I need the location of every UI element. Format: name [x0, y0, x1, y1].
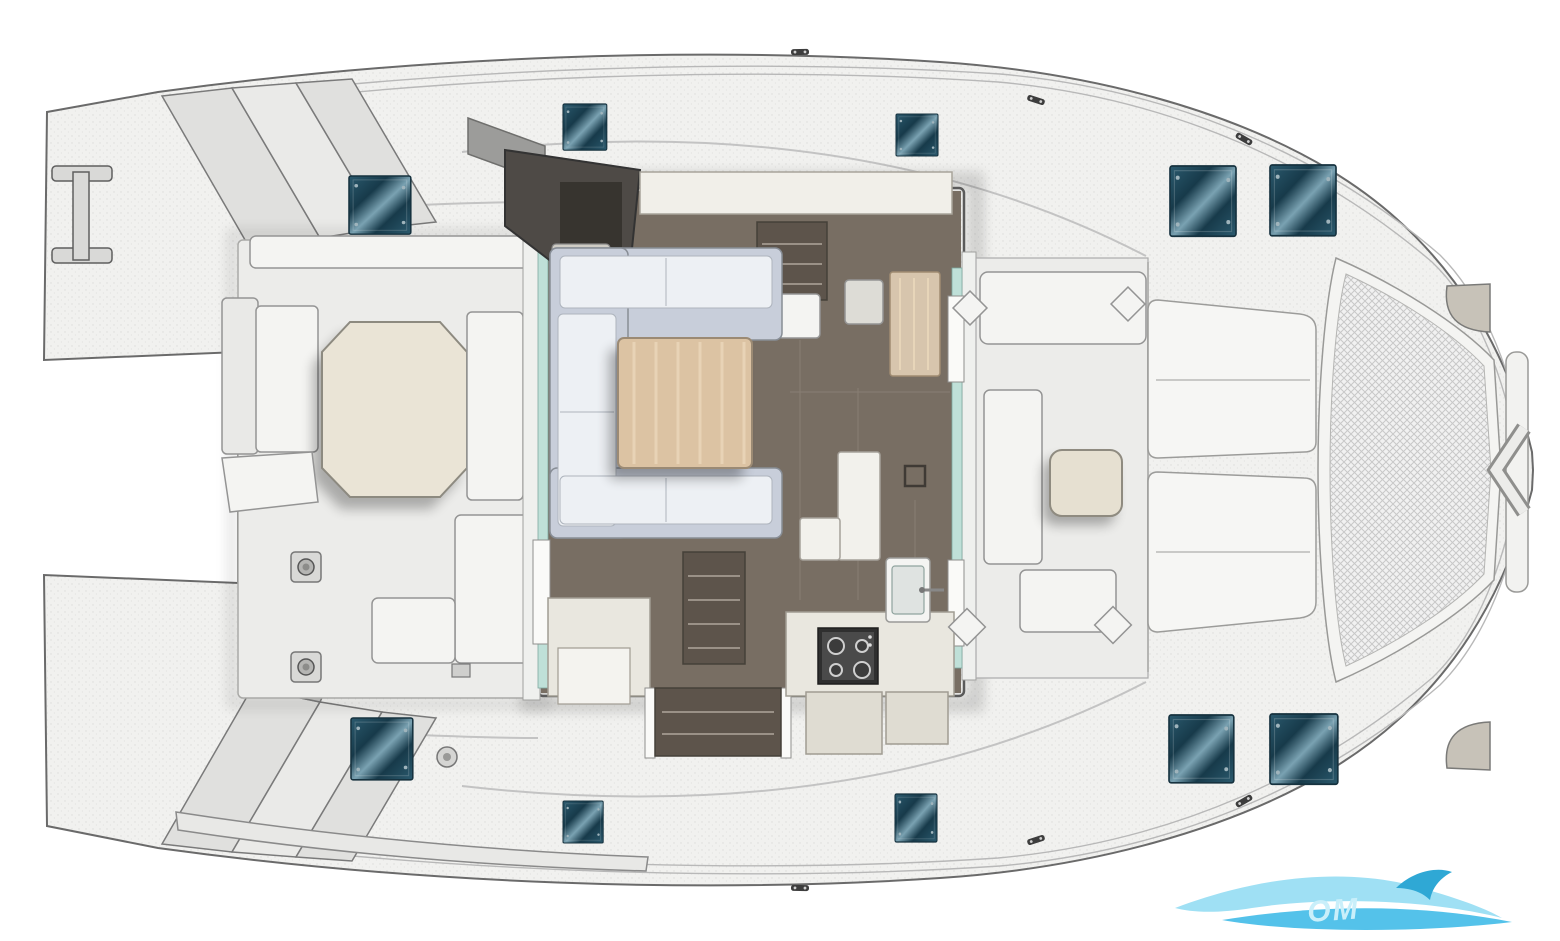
chaise-bench [467, 312, 523, 500]
deck-hatch [1270, 165, 1336, 236]
stairs-to-starboard-hull [683, 552, 745, 664]
watermark-text: OM [1306, 892, 1361, 929]
cleat-icon [791, 885, 809, 891]
aft-cockpit [222, 236, 543, 698]
galley-cabinet-aft [886, 692, 948, 744]
salon-table [618, 338, 752, 468]
deck-hatch [895, 794, 937, 842]
fwd-cockpit-table [1050, 450, 1122, 516]
watermark-logo: OM [1175, 870, 1512, 930]
bow-crossbeam [1506, 352, 1528, 592]
stove [818, 628, 878, 684]
cockpit-bench-low [372, 598, 455, 663]
winch [291, 552, 321, 582]
deck-hatch [1270, 714, 1338, 784]
aft-coaming-bench [250, 236, 538, 268]
nav-cabinet [890, 272, 940, 376]
fwd-bench-left [984, 390, 1042, 564]
deck-fitting-square [452, 664, 470, 677]
deck-hatch [349, 176, 411, 234]
deck-hatch [563, 801, 603, 843]
aft-cockpit-table [322, 322, 467, 497]
appliance-front [558, 648, 630, 704]
salon [468, 118, 976, 758]
aft-corner-bench [222, 452, 318, 512]
settee-back [222, 298, 258, 454]
bow-fairlead [1446, 722, 1490, 770]
deck-hatch [1170, 166, 1236, 236]
ladder-rail [73, 172, 89, 260]
deck-plan-image: OM [0, 0, 1560, 941]
nav-seat [845, 280, 883, 324]
entry-steps [645, 688, 791, 758]
cleat-icon [791, 49, 809, 55]
forward-cockpit [949, 258, 1148, 678]
deck-hatch [563, 104, 607, 150]
winch [291, 652, 321, 682]
deck-hatch [351, 718, 413, 780]
overhead-cabinet-band [640, 172, 952, 214]
deck-hatch [896, 114, 938, 156]
watermark-swoosh-dark [1222, 908, 1512, 930]
galley-cabinet-aft [806, 692, 882, 754]
settee-seat [256, 306, 318, 452]
ottoman [778, 294, 820, 338]
deck-hatch [1169, 715, 1234, 783]
deck-filler-cap-inner [443, 753, 451, 761]
helm-panel [560, 182, 622, 248]
